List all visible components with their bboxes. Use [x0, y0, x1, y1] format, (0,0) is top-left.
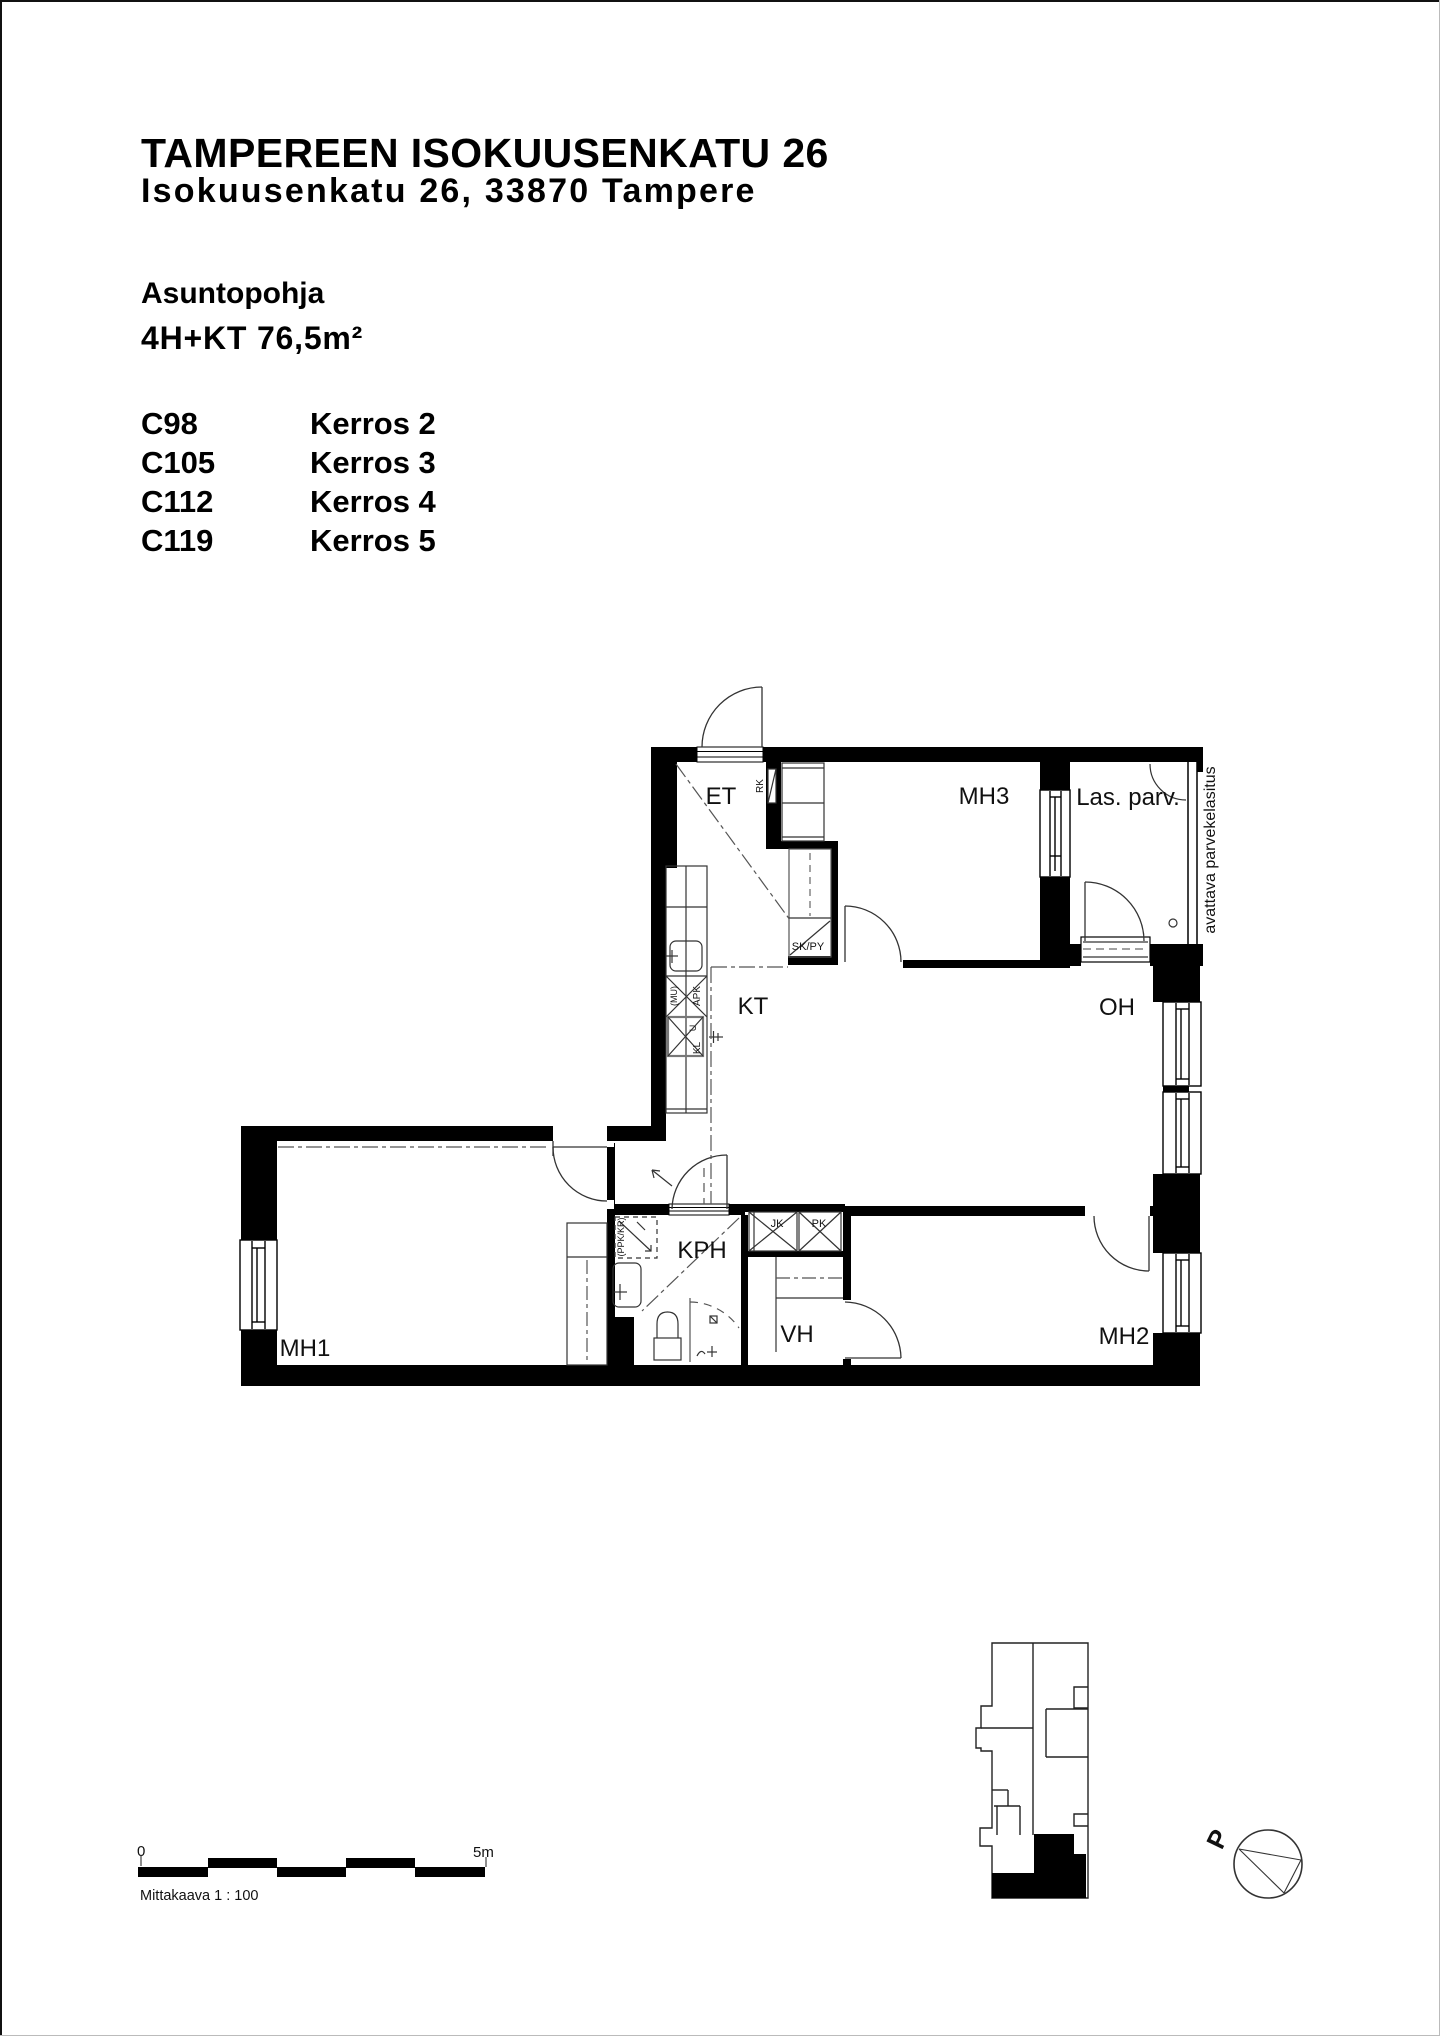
svg-text:Las. parv.: Las. parv. [1076, 784, 1180, 811]
svg-text:Mittakaava 1 : 100: Mittakaava 1 : 100 [140, 1888, 259, 1904]
svg-text:5m: 5m [473, 1844, 494, 1861]
svg-text:JK: JK [771, 1218, 785, 1230]
svg-text:MH1: MH1 [280, 1335, 331, 1362]
svg-text:VH: VH [780, 1321, 813, 1348]
svg-text:KL: KL [692, 1041, 703, 1054]
svg-text:avattava parvekelasitus: avattava parvekelasitus [1202, 766, 1219, 933]
svg-text:ET: ET [706, 783, 737, 810]
svg-text:KPH: KPH [677, 1237, 726, 1264]
svg-text:MH3: MH3 [959, 783, 1010, 810]
svg-text:MH2: MH2 [1099, 1323, 1150, 1350]
svg-text:P: P [1200, 1825, 1235, 1854]
svg-text:OH: OH [1099, 994, 1135, 1021]
svg-text:SK/PY: SK/PY [792, 941, 825, 953]
svg-text:U: U [688, 1025, 698, 1032]
svg-text:PK: PK [812, 1218, 827, 1230]
svg-text:APK: APK [692, 986, 703, 1006]
svg-text:(MU): (MU) [669, 986, 679, 1006]
svg-text:RK: RK [755, 779, 766, 793]
svg-text:KT: KT [738, 993, 769, 1020]
svg-text:(PPK/KR): (PPK/KR) [616, 1217, 626, 1256]
